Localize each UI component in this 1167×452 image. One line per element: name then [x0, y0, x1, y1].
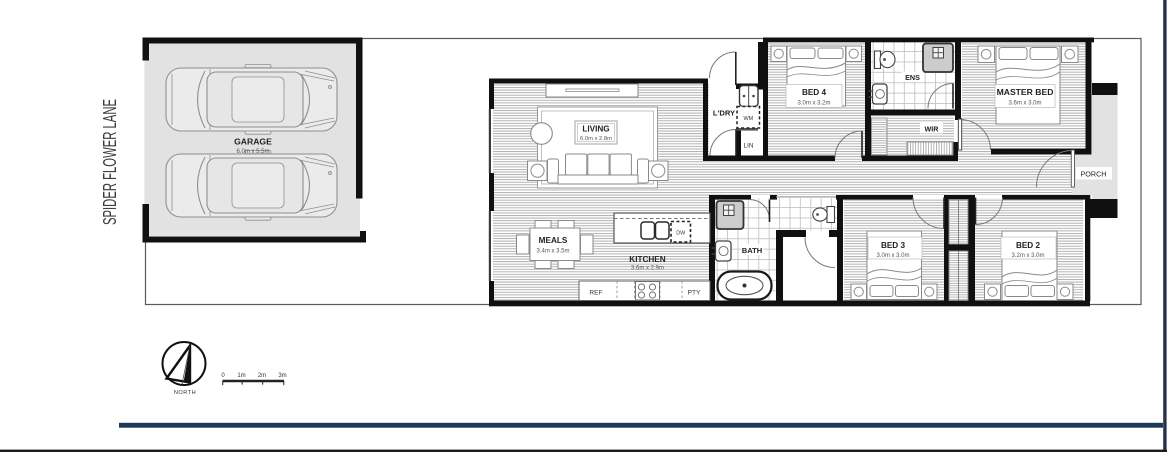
svg-text:3.0m x 3.2m: 3.0m x 3.2m — [797, 101, 830, 107]
svg-text:3.4m x 3.5m: 3.4m x 3.5m — [536, 249, 569, 255]
svg-text:BED 4: BED 4 — [802, 88, 827, 97]
svg-text:3.6m x 3.0m: 3.6m x 3.0m — [1008, 101, 1041, 107]
svg-text:WIR: WIR — [925, 124, 940, 133]
svg-text:REF: REF — [589, 290, 602, 297]
svg-text:6.0m x 2.8m: 6.0m x 2.8m — [580, 136, 612, 142]
svg-text:BED 2: BED 2 — [1016, 241, 1041, 250]
svg-text:DW: DW — [676, 230, 686, 236]
svg-text:MEALS: MEALS — [539, 236, 568, 245]
svg-text:LIVING: LIVING — [582, 125, 609, 134]
svg-text:WM: WM — [744, 116, 754, 122]
svg-text:GARAGE: GARAGE — [234, 137, 272, 147]
svg-text:3.2m x 3.0m: 3.2m x 3.0m — [1011, 253, 1044, 259]
svg-text:6.0m x 5.5m: 6.0m x 5.5m — [236, 149, 269, 155]
svg-text:BATH: BATH — [742, 246, 763, 255]
svg-text:2m: 2m — [258, 373, 266, 379]
svg-text:BED 3: BED 3 — [881, 241, 906, 250]
svg-text:1m: 1m — [237, 373, 245, 379]
svg-text:L'DRY: L'DRY — [713, 109, 735, 118]
svg-text:3m: 3m — [278, 373, 286, 379]
svg-text:NORTH: NORTH — [174, 390, 196, 396]
svg-text:SPIDER FLOWER LANE: SPIDER FLOWER LANE — [100, 99, 120, 225]
svg-text:MASTER BED: MASTER BED — [997, 87, 1054, 97]
svg-text:PTY: PTY — [688, 290, 701, 297]
svg-text:3.6m x 2.9m: 3.6m x 2.9m — [631, 266, 664, 272]
svg-text:PORCH: PORCH — [1081, 170, 1107, 179]
svg-text:LIN: LIN — [744, 143, 754, 150]
svg-text:ENS: ENS — [905, 73, 920, 82]
svg-text:0: 0 — [221, 373, 225, 379]
svg-text:3.0m x 3.0m: 3.0m x 3.0m — [876, 253, 909, 259]
svg-text:KITCHEN: KITCHEN — [629, 255, 665, 264]
